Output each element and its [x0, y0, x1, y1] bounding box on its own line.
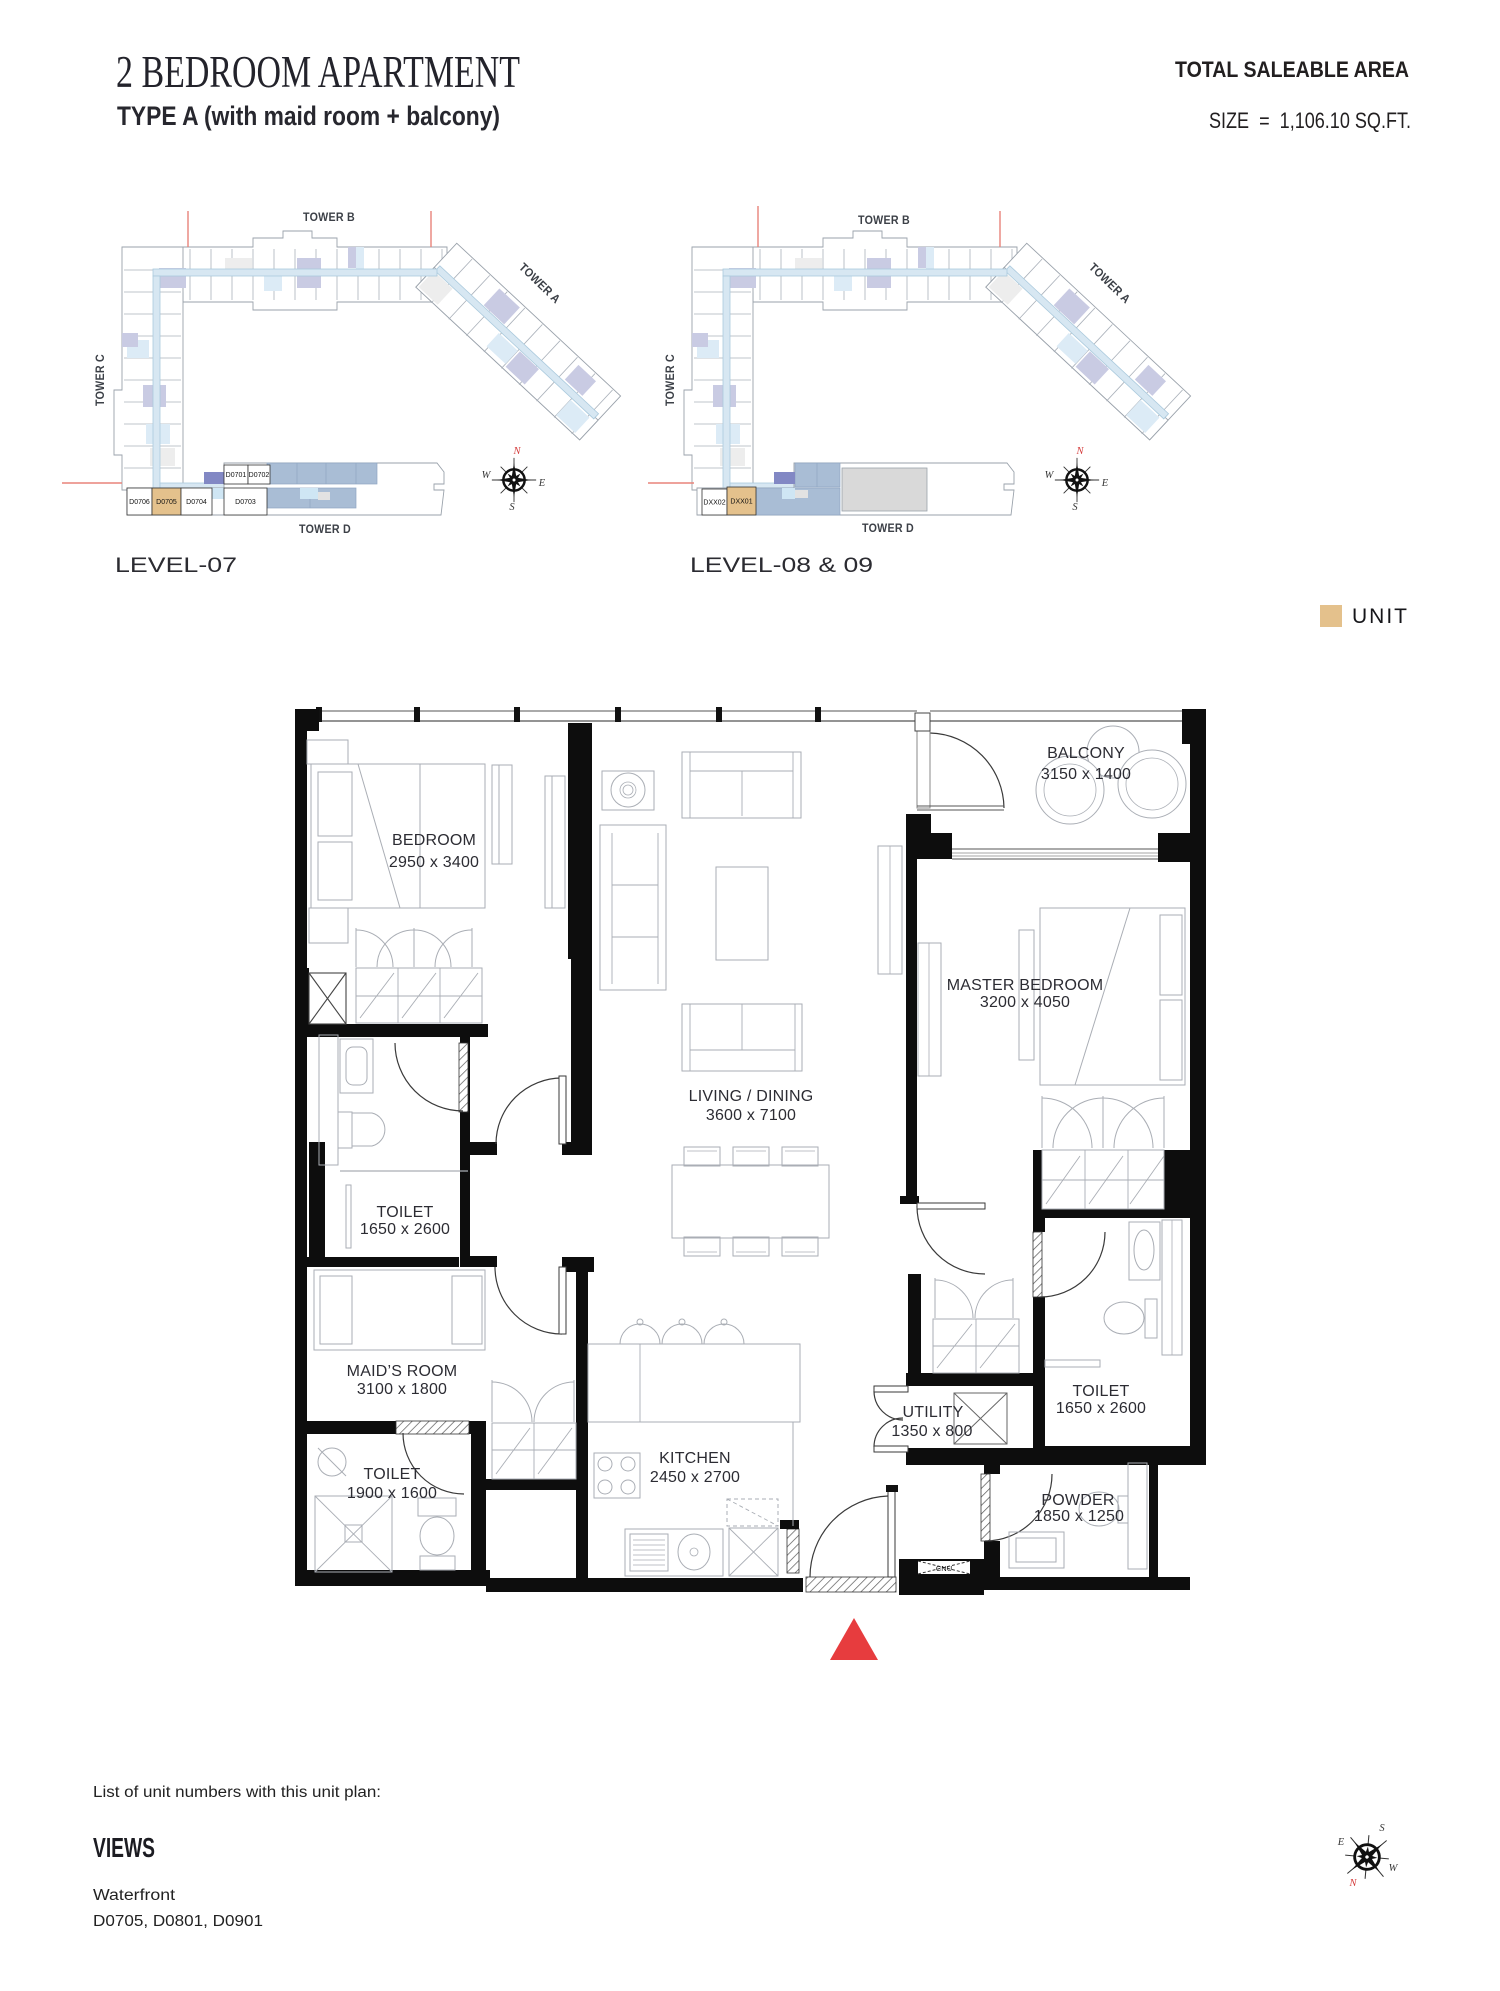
svg-text:TOILET: TOILET	[1073, 1383, 1130, 1400]
svg-text:1650 x 2600: 1650 x 2600	[1056, 1400, 1146, 1417]
svg-text:POWDER: POWDER	[1041, 1492, 1114, 1509]
svg-text:D0701: D0701	[226, 472, 247, 479]
svg-text:W: W	[1045, 470, 1055, 481]
svg-text:TOILET: TOILET	[364, 1466, 421, 1483]
svg-text:1850 x 1250: 1850 x 1250	[1034, 1508, 1124, 1525]
svg-text:TOWER C: TOWER C	[663, 354, 677, 406]
svg-text:List of unit numbers with this: List of unit numbers with this unit plan…	[93, 1784, 381, 1801]
svg-text:D0704: D0704	[186, 499, 207, 506]
svg-text:BALCONY: BALCONY	[1047, 745, 1125, 762]
svg-text:SIZE = 1,106.10 SQ.FT.: SIZE = 1,106.10 SQ.FT.	[1209, 108, 1411, 133]
svg-text:TOWER B: TOWER B	[858, 213, 910, 227]
svg-text:W: W	[1389, 1863, 1399, 1874]
svg-text:CNU: CNU	[936, 1564, 952, 1573]
svg-text:UTILITY: UTILITY	[903, 1404, 964, 1421]
svg-text:TOWER B: TOWER B	[303, 210, 355, 224]
svg-text:1650 x 2600: 1650 x 2600	[360, 1221, 450, 1238]
svg-text:2 BEDROOM APARTMENT: 2 BEDROOM APARTMENT	[116, 47, 520, 97]
svg-text:TOWER A: TOWER A	[516, 260, 563, 306]
svg-text:E: E	[538, 478, 546, 489]
svg-text:D0705, D0801, D0901: D0705, D0801, D0901	[93, 1913, 263, 1930]
svg-text:LEVEL-08 & 09: LEVEL-08 & 09	[690, 553, 873, 577]
svg-text:D0706: D0706	[129, 499, 150, 506]
svg-text:DXX01: DXX01	[730, 499, 752, 506]
svg-text:VIEWS: VIEWS	[93, 1832, 155, 1863]
svg-text:DXX02: DXX02	[703, 500, 725, 507]
svg-text:3150 x 1400: 3150 x 1400	[1041, 766, 1131, 783]
svg-text:TOWER D: TOWER D	[862, 521, 914, 535]
svg-text:UNIT: UNIT	[1352, 605, 1409, 628]
svg-text:E: E	[1101, 478, 1109, 489]
svg-text:TOWER A: TOWER A	[1086, 260, 1133, 306]
svg-text:S: S	[1072, 502, 1078, 513]
svg-text:TYPE A (with maid room + balco: TYPE A (with maid room + balcony)	[117, 101, 500, 131]
svg-text:1900 x 1600: 1900 x 1600	[347, 1485, 437, 1502]
svg-text:TOWER D: TOWER D	[299, 522, 351, 536]
svg-text:MASTER BEDROOM: MASTER BEDROOM	[947, 977, 1104, 994]
svg-text:MAID’S ROOM: MAID’S ROOM	[347, 1363, 458, 1380]
svg-text:2950 x 3400: 2950 x 3400	[389, 854, 479, 871]
svg-text:LEVEL-07: LEVEL-07	[115, 553, 237, 577]
svg-text:S: S	[1379, 1823, 1385, 1834]
svg-text:3600 x 7100: 3600 x 7100	[706, 1107, 796, 1124]
svg-text:W: W	[482, 470, 492, 481]
svg-text:S: S	[509, 502, 515, 513]
svg-text:N: N	[512, 446, 521, 457]
svg-text:TOWER C: TOWER C	[93, 354, 107, 406]
svg-text:D0705: D0705	[156, 499, 177, 506]
svg-text:3100 x 1800: 3100 x 1800	[357, 1381, 447, 1398]
svg-text:Waterfront: Waterfront	[93, 1887, 176, 1904]
svg-text:E: E	[1337, 1837, 1345, 1848]
svg-text:TOTAL SALEABLE AREA: TOTAL SALEABLE AREA	[1175, 57, 1409, 82]
svg-text:LIVING / DINING: LIVING / DINING	[689, 1088, 814, 1105]
svg-text:1350 x 800: 1350 x 800	[891, 1423, 972, 1440]
svg-text:2450 x 2700: 2450 x 2700	[650, 1469, 740, 1486]
svg-text:KITCHEN: KITCHEN	[659, 1450, 731, 1467]
svg-text:TOILET: TOILET	[377, 1204, 434, 1221]
svg-text:D0702: D0702	[249, 472, 270, 479]
svg-text:D0703: D0703	[235, 499, 256, 506]
svg-text:N: N	[1075, 446, 1084, 457]
svg-text:N: N	[1348, 1878, 1357, 1889]
svg-text:BEDROOM: BEDROOM	[392, 832, 476, 849]
svg-text:3200 x 4050: 3200 x 4050	[980, 994, 1070, 1011]
